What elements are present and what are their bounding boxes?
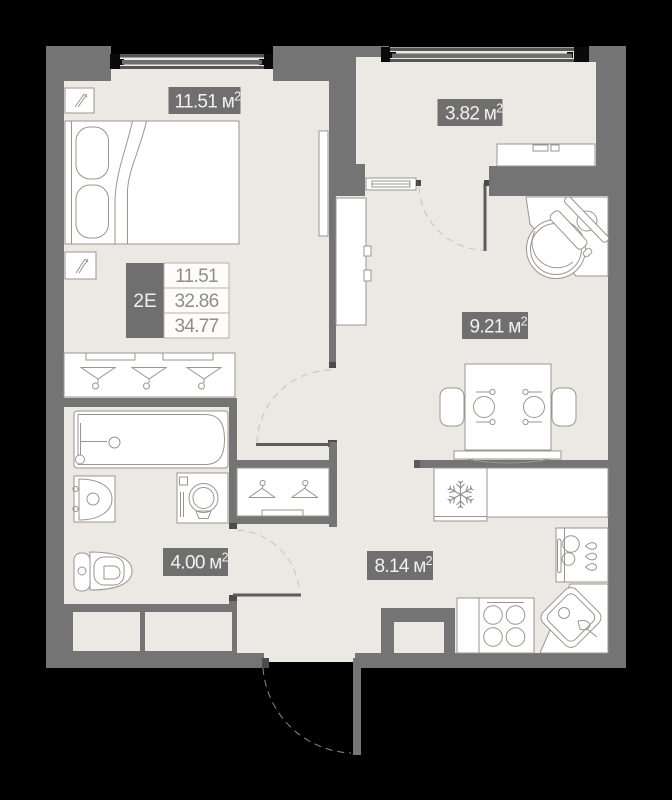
svg-text:11.51: 11.51: [175, 266, 218, 287]
svg-text:2Е: 2Е: [133, 291, 156, 312]
svg-text:34.77: 34.77: [174, 316, 218, 337]
svg-text:3.82 м2: 3.82 м2: [445, 102, 503, 125]
svg-text:9.21 м2: 9.21 м2: [470, 315, 528, 338]
svg-text:32.86: 32.86: [174, 291, 218, 312]
svg-text:8.14 м2: 8.14 м2: [375, 554, 433, 577]
svg-text:11.51 м2: 11.51 м2: [175, 90, 242, 113]
svg-text:4.00 м2: 4.00 м2: [171, 551, 229, 574]
